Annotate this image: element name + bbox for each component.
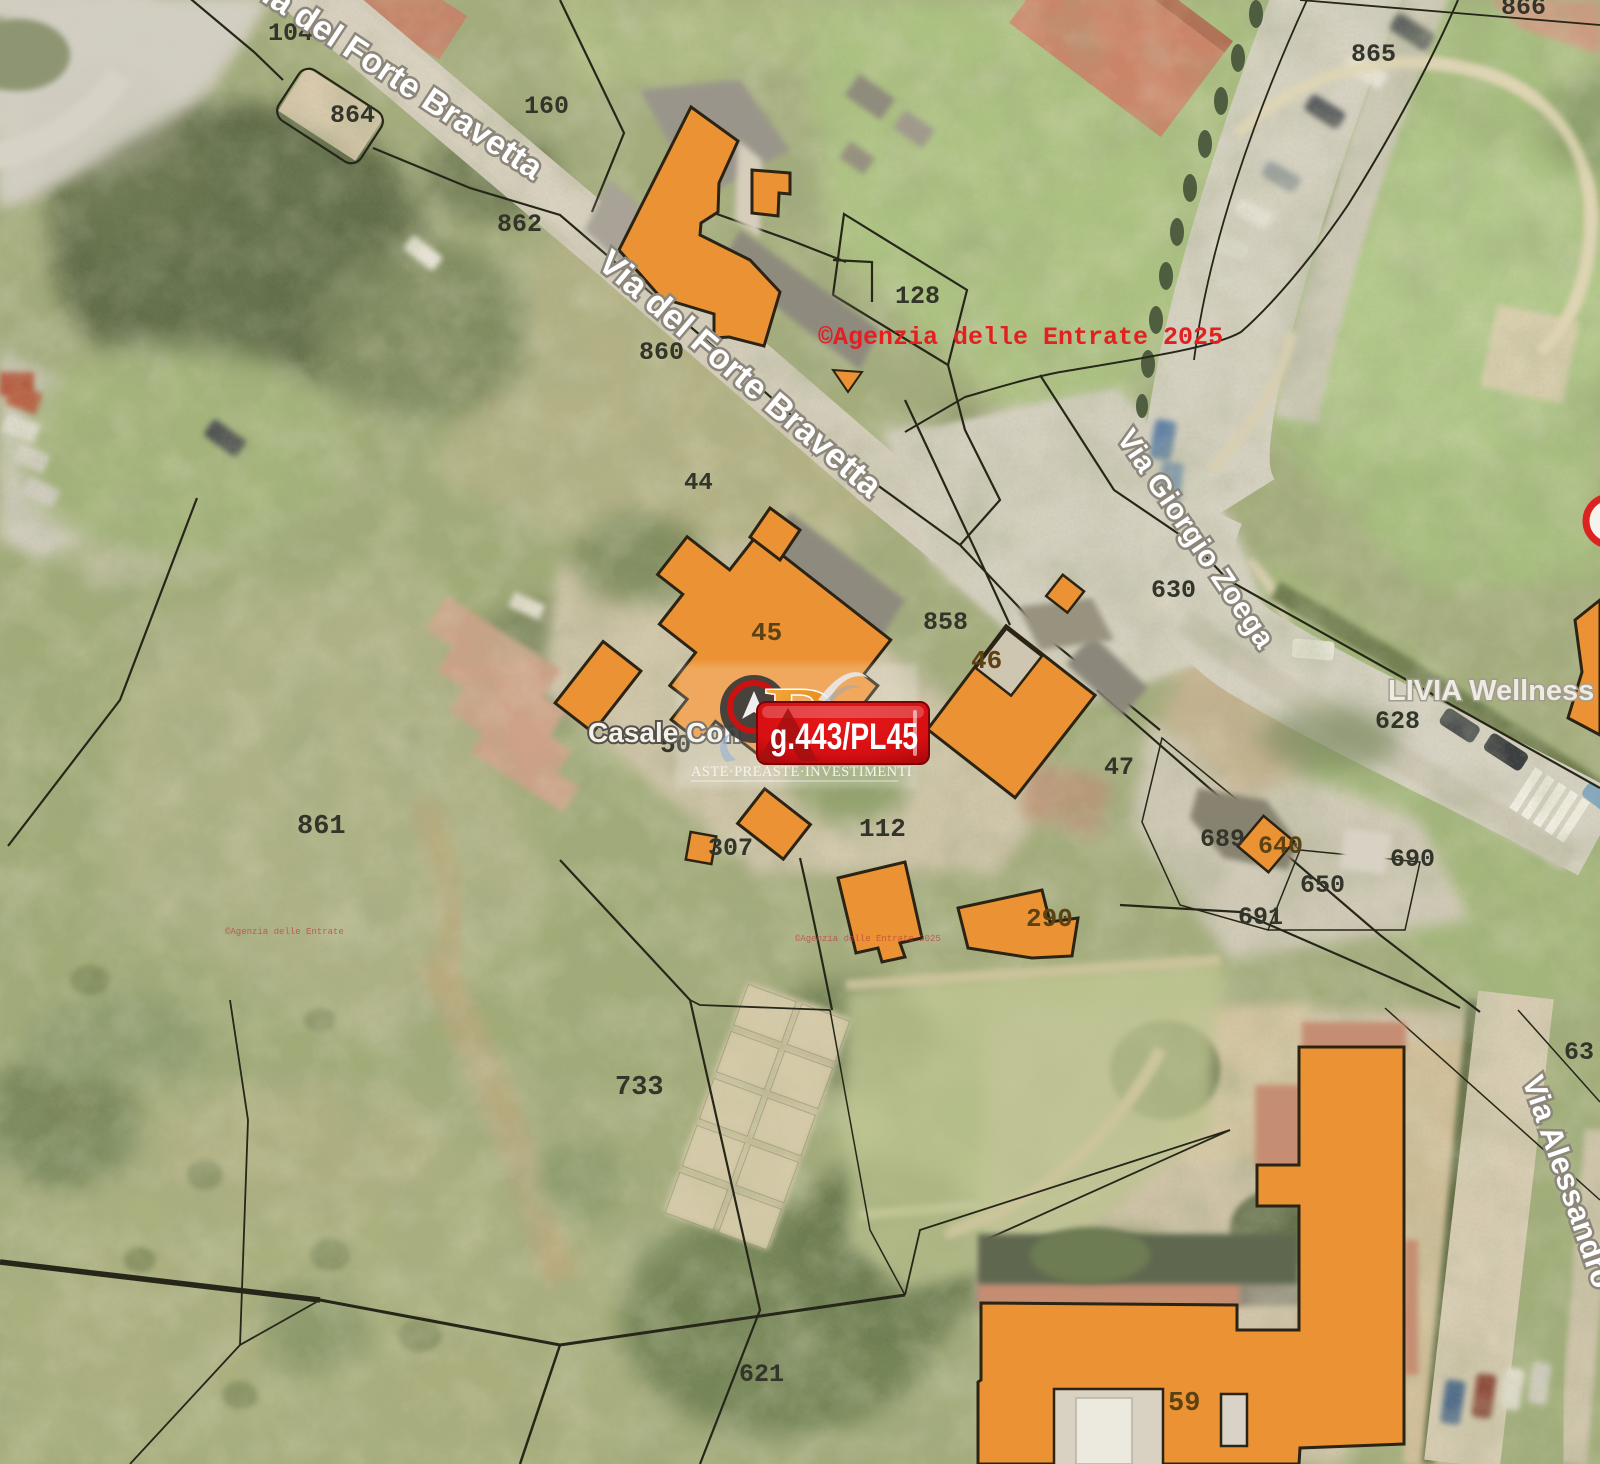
svg-text:©Agenzia delle Entrate: ©Agenzia delle Entrate [225, 927, 344, 937]
svg-text:691: 691 [1238, 903, 1283, 932]
svg-text:290: 290 [1026, 904, 1073, 934]
svg-text:128: 128 [895, 282, 940, 311]
svg-text:46: 46 [971, 646, 1002, 676]
svg-text:47: 47 [1104, 753, 1134, 782]
svg-text:630: 630 [1151, 576, 1196, 605]
svg-text:640: 640 [1258, 832, 1303, 861]
svg-text:865: 865 [1351, 40, 1396, 69]
svg-text:112: 112 [859, 814, 906, 844]
svg-text:45: 45 [751, 618, 782, 648]
svg-text:©Agenzia delle Entrate 2025: ©Agenzia delle Entrate 2025 [818, 323, 1223, 352]
svg-text:689: 689 [1200, 825, 1245, 854]
svg-text:44: 44 [684, 470, 713, 497]
svg-text:858: 858 [923, 608, 968, 637]
svg-text:59: 59 [1168, 1389, 1200, 1419]
svg-text:63: 63 [1564, 1038, 1594, 1067]
svg-text:©Agenzia delle Entrate 2025: ©Agenzia delle Entrate 2025 [795, 934, 941, 944]
svg-text:ASTE·PREASTE·INVESTIMENTI: ASTE·PREASTE·INVESTIMENTI [691, 764, 912, 780]
svg-text:160: 160 [524, 92, 569, 121]
svg-text:650: 650 [1300, 871, 1345, 900]
svg-text:733: 733 [615, 1073, 664, 1103]
svg-text:g.443/PL45: g.443/PL45 [770, 716, 918, 757]
svg-text:LIVIA Wellness: LIVIA Wellness [1388, 675, 1594, 707]
svg-text:862: 862 [497, 210, 542, 239]
svg-text:628: 628 [1375, 707, 1420, 736]
svg-text:621: 621 [739, 1360, 784, 1389]
svg-text:307: 307 [708, 834, 753, 863]
svg-text:864: 864 [330, 101, 375, 130]
svg-text:866: 866 [1501, 0, 1546, 22]
svg-text:690: 690 [1390, 845, 1435, 874]
svg-text:861: 861 [297, 812, 346, 842]
